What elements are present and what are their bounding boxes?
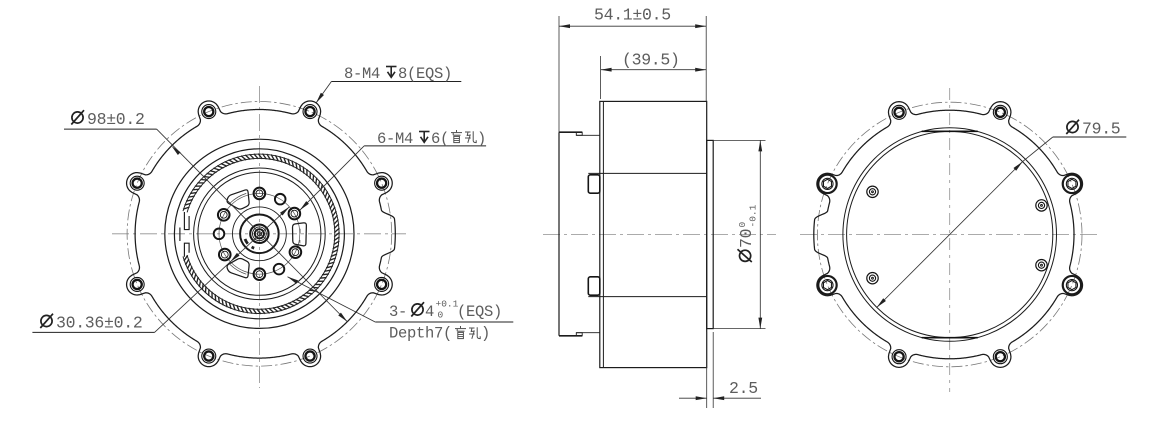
svg-text:8-M4: 8-M4: [344, 65, 380, 83]
svg-text:4: 4: [425, 303, 434, 321]
svg-text:6(: 6(: [431, 130, 449, 148]
svg-text:): ): [481, 325, 490, 343]
svg-text:0: 0: [737, 222, 748, 228]
svg-text:(39.5): (39.5): [622, 51, 680, 70]
svg-text:8(EQS): 8(EQS): [398, 65, 452, 83]
svg-text:70: 70: [737, 229, 756, 248]
svg-text:6-M4: 6-M4: [377, 130, 413, 148]
svg-text:79.5: 79.5: [1082, 120, 1120, 139]
svg-text:(EQS): (EQS): [457, 303, 502, 321]
svg-text:54.1±0.5: 54.1±0.5: [594, 6, 671, 25]
svg-text:2.5: 2.5: [729, 379, 758, 398]
svg-text:-0.1: -0.1: [748, 204, 759, 227]
svg-text:30.36±0.2: 30.36±0.2: [56, 314, 142, 333]
svg-text:Depth7(: Depth7(: [389, 325, 452, 343]
svg-text:): ): [477, 130, 486, 148]
svg-text:0: 0: [438, 310, 444, 321]
svg-text:+0.1: +0.1: [436, 299, 459, 310]
svg-text:3-: 3-: [389, 303, 407, 321]
svg-text:98±0.2: 98±0.2: [87, 110, 145, 129]
